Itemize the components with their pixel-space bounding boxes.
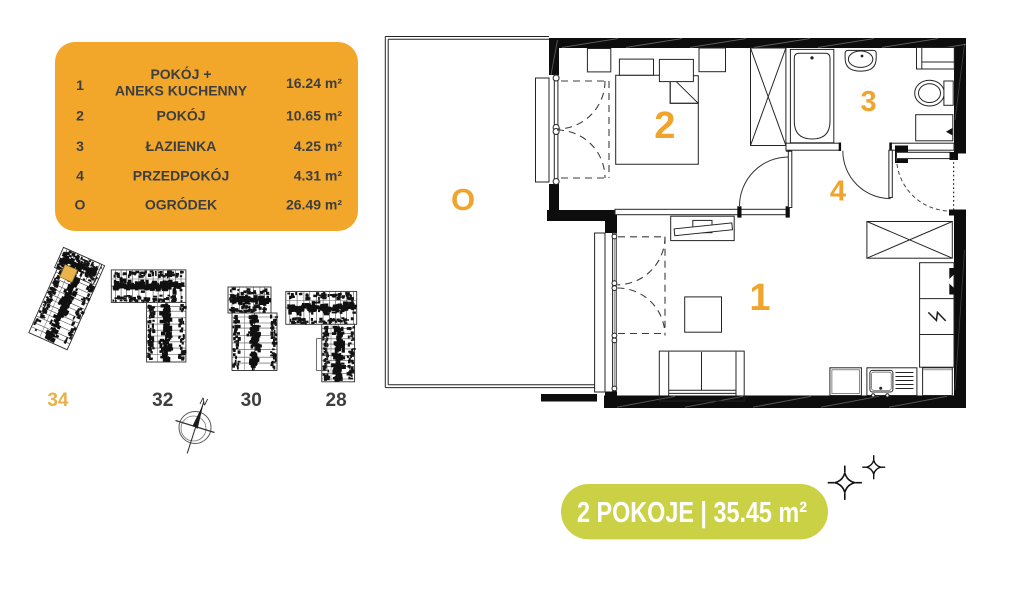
svg-text:O: O	[75, 197, 86, 213]
svg-text:O: O	[451, 182, 475, 217]
svg-text:2 POKOJE | 35.45 m²: 2 POKOJE | 35.45 m²	[577, 497, 807, 529]
svg-text:4.25 m²: 4.25 m²	[294, 138, 343, 154]
svg-text:POKÓJ: POKÓJ	[156, 107, 205, 124]
svg-text:32: 32	[152, 390, 173, 411]
svg-text:2: 2	[76, 108, 84, 124]
svg-text:28: 28	[326, 390, 347, 411]
svg-text:4: 4	[76, 168, 84, 184]
svg-text:1: 1	[749, 277, 770, 319]
svg-text:PRZEDPOKÓJ: PRZEDPOKÓJ	[133, 167, 229, 184]
svg-text:3: 3	[76, 138, 84, 154]
svg-text:ANEKS KUCHENNY: ANEKS KUCHENNY	[115, 83, 248, 99]
svg-text:N: N	[198, 396, 209, 409]
svg-text:1: 1	[76, 77, 84, 93]
svg-text:10.65 m²: 10.65 m²	[286, 108, 342, 124]
svg-text:30: 30	[241, 390, 262, 411]
svg-text:34: 34	[47, 390, 69, 411]
svg-text:2: 2	[654, 105, 675, 147]
svg-text:3: 3	[861, 86, 877, 118]
svg-text:4.31 m²: 4.31 m²	[294, 168, 343, 184]
svg-text:16.24 m²: 16.24 m²	[286, 75, 342, 91]
svg-text:OGRÓDEK: OGRÓDEK	[145, 196, 217, 213]
svg-text:26.49 m²: 26.49 m²	[286, 197, 342, 213]
svg-text:ŁAZIENKA: ŁAZIENKA	[146, 138, 217, 154]
svg-text:POKÓJ +: POKÓJ +	[150, 65, 211, 82]
svg-text:4: 4	[830, 176, 846, 208]
